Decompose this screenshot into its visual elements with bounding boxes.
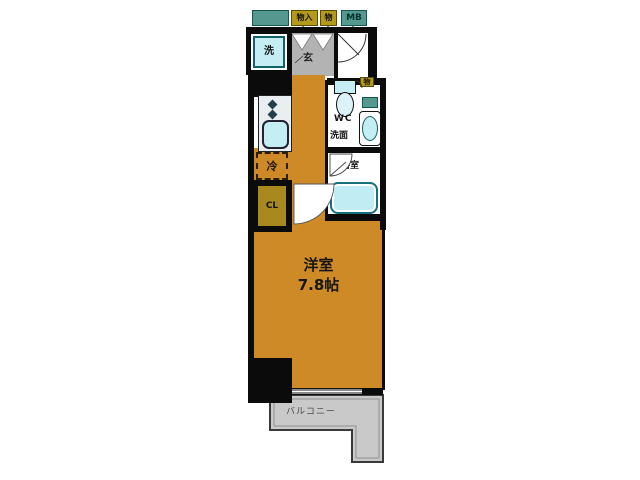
window-bottom bbox=[292, 388, 362, 395]
entry-door-leaf bbox=[338, 34, 359, 55]
storage-callout: 物 bbox=[320, 10, 337, 26]
closet-cl: CL bbox=[258, 186, 286, 226]
wc-shelf bbox=[362, 97, 378, 108]
bathroom-label: 浴室 bbox=[341, 158, 359, 171]
washing-machine: 洗 bbox=[253, 36, 285, 68]
wall-wash-bath-divider bbox=[327, 147, 380, 153]
balcony-label: バルコニー bbox=[286, 404, 336, 417]
entrance-label: 玄 bbox=[303, 49, 313, 64]
refrigerator-space: 冷 bbox=[256, 152, 288, 180]
main-room-label: 洋室 7.8帖 bbox=[254, 255, 383, 296]
kitchen-sink bbox=[262, 120, 289, 149]
main-room-name: 洋室 bbox=[254, 255, 383, 275]
hallway-kitchen-floor bbox=[290, 75, 325, 182]
toilet-label: WC bbox=[334, 114, 353, 124]
wall-genkan-nook-divider bbox=[334, 33, 338, 80]
floorplan-canvas: バルコニー 洗 CL 冷 玄 WC 洗面 浴室 洋室 7.8帖 bbox=[0, 0, 640, 480]
main-room-size: 7.8帖 bbox=[254, 275, 383, 295]
wall-storage-callout: 物 bbox=[360, 77, 374, 87]
meter-box-callout: MB bbox=[341, 10, 367, 26]
wall-right-thick bbox=[380, 80, 386, 230]
bathtub bbox=[330, 182, 378, 214]
washroom-label: 洗面 bbox=[330, 128, 348, 141]
wall-entry-right bbox=[368, 27, 377, 80]
wall-pillar-bottom-left bbox=[252, 358, 292, 403]
wall-bath-bottom bbox=[325, 214, 386, 221]
entrance-hall-floor bbox=[290, 33, 336, 76]
wall-kitchen-block bbox=[252, 72, 292, 97]
wall-bottom-right-stub bbox=[362, 388, 383, 395]
storage-closet-callout: 物入 bbox=[291, 10, 318, 26]
entry-door-arc bbox=[338, 34, 366, 62]
wall-right-thin bbox=[382, 230, 385, 390]
vanity-basin bbox=[362, 116, 378, 141]
duct-box bbox=[252, 10, 289, 26]
